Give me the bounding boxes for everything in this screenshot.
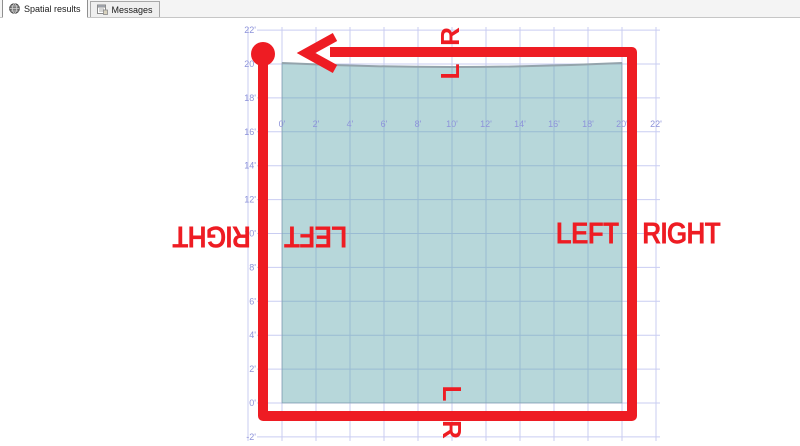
tab-label: Spatial results bbox=[24, 4, 81, 14]
x-axis-label: 4' bbox=[347, 119, 354, 129]
x-axis-label: 6' bbox=[381, 119, 388, 129]
y-axis-label: 6' bbox=[249, 296, 256, 306]
messages-icon bbox=[97, 4, 108, 15]
y-axis-label: 8' bbox=[249, 262, 256, 272]
y-axis-label: 4' bbox=[249, 330, 256, 340]
x-axis-label: 18' bbox=[582, 119, 594, 129]
y-axis-label: 0' bbox=[249, 398, 256, 408]
spatial-plot: 0'2'4'6'8'10'12'14'16'18'20'22'22'20'18'… bbox=[0, 0, 800, 446]
tab-label: Messages bbox=[112, 5, 153, 15]
y-axis-label: 16' bbox=[244, 127, 256, 137]
y-axis-label: 2' bbox=[249, 364, 256, 374]
y-axis-label: -2' bbox=[246, 432, 256, 442]
x-axis-label: 2' bbox=[313, 119, 320, 129]
x-axis-label: 20' bbox=[616, 119, 628, 129]
x-axis-label: 0' bbox=[279, 119, 286, 129]
y-axis-label: 12' bbox=[244, 195, 256, 205]
x-axis-label: 12' bbox=[480, 119, 492, 129]
spatial-polygon bbox=[282, 63, 622, 403]
tab-spatial-results[interactable]: Spatial results bbox=[2, 0, 88, 18]
tab-messages[interactable]: Messages bbox=[90, 1, 160, 17]
x-axis-label: 16' bbox=[548, 119, 560, 129]
results-tab-bar: Spatial results Messages bbox=[0, 0, 800, 18]
route-start-point bbox=[251, 42, 275, 66]
globe-icon bbox=[9, 3, 20, 14]
x-axis-label: 8' bbox=[415, 119, 422, 129]
x-axis-label: 22' bbox=[650, 119, 662, 129]
y-axis-label: 14' bbox=[244, 161, 256, 171]
y-axis-label: 18' bbox=[244, 93, 256, 103]
x-axis-label: 10' bbox=[446, 119, 458, 129]
x-axis-label: 14' bbox=[514, 119, 526, 129]
y-axis-label: 22' bbox=[244, 25, 256, 35]
y-axis-label: 10' bbox=[244, 229, 256, 239]
